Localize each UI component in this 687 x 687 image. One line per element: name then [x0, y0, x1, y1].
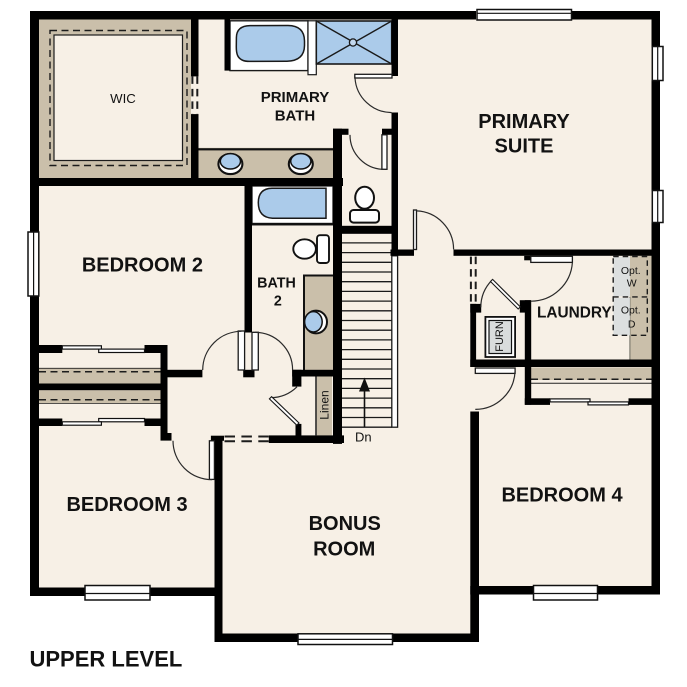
svg-text:LAUNDRY: LAUNDRY	[537, 305, 612, 322]
svg-text:BONUS: BONUS	[309, 513, 381, 535]
svg-text:Opt.: Opt.	[621, 265, 641, 277]
svg-text:Opt.: Opt.	[621, 305, 641, 317]
svg-text:2: 2	[274, 294, 282, 310]
svg-text:BATH: BATH	[257, 276, 296, 292]
svg-text:Dn: Dn	[355, 430, 372, 445]
svg-text:BEDROOM 4: BEDROOM 4	[501, 485, 623, 507]
svg-text:Linen: Linen	[318, 390, 332, 419]
svg-text:SUITE: SUITE	[495, 136, 554, 158]
svg-text:PRIMARY: PRIMARY	[261, 89, 330, 106]
svg-text:D: D	[628, 319, 636, 331]
svg-text:ROOM: ROOM	[313, 539, 375, 561]
svg-text:BATH: BATH	[275, 108, 316, 125]
svg-text:FURN: FURN	[494, 321, 506, 352]
svg-text:WIC: WIC	[110, 91, 136, 106]
svg-text:BEDROOM 2: BEDROOM 2	[82, 255, 203, 277]
svg-text:W: W	[627, 278, 637, 290]
svg-text:PRIMARY: PRIMARY	[478, 111, 570, 133]
svg-text:UPPER LEVEL: UPPER LEVEL	[30, 647, 183, 672]
svg-text:BEDROOM 3: BEDROOM 3	[66, 494, 187, 516]
